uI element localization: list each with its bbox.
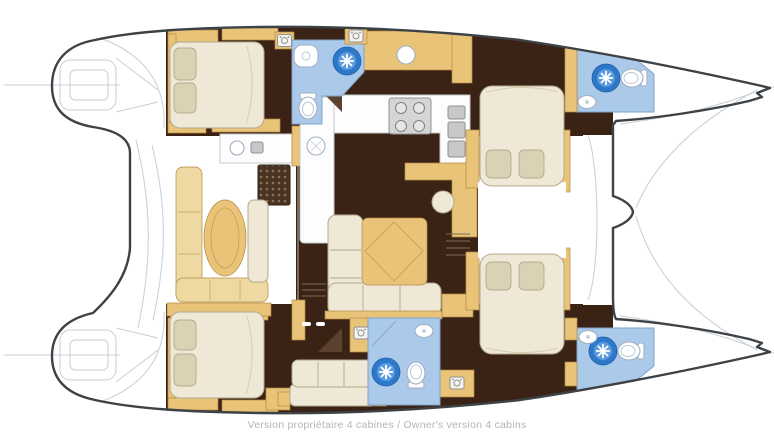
shower-icon	[372, 358, 400, 386]
cockpit-bench	[248, 200, 268, 282]
pillow	[174, 354, 196, 386]
sink-icon	[294, 45, 318, 67]
oven-icon	[448, 122, 465, 138]
sink-icon	[579, 331, 597, 344]
forward-cabin-port	[466, 86, 570, 222]
pillow	[174, 48, 196, 80]
floor-hatch-grid	[258, 165, 290, 205]
shower-icon	[333, 47, 361, 75]
sink-icon	[578, 96, 596, 109]
forward-cabin-starboard	[466, 218, 570, 354]
toilet-icon	[299, 93, 317, 119]
oven-icon	[448, 106, 465, 119]
forward-bathroom-starboard	[565, 318, 657, 407]
faucet-icon	[251, 142, 263, 153]
washer-icon	[349, 30, 363, 42]
shower-icon	[592, 64, 620, 92]
saloon-table	[362, 218, 427, 285]
floor-plan-page: Version propriétaire 4 cabines / Owner's…	[0, 0, 774, 440]
plan-caption: Version propriétaire 4 cabines / Owner's…	[0, 419, 774, 431]
aft-bathroom-starboard	[368, 318, 440, 405]
pillow	[519, 262, 544, 290]
catamaran-floor-plan	[0, 0, 774, 440]
sink-icon	[230, 141, 244, 155]
forward-bathroom-port	[565, 33, 657, 112]
washer-icon	[278, 35, 292, 47]
sink-icon	[397, 46, 415, 64]
stove-icon	[389, 98, 431, 134]
door-jamb	[292, 300, 305, 340]
sink-icon	[415, 325, 433, 338]
fridge-icon	[448, 141, 465, 157]
washer-icon	[354, 327, 368, 339]
toilet-icon	[407, 362, 425, 388]
cockpit-table	[204, 200, 246, 276]
saloon-sofa	[328, 283, 441, 315]
wardrobe	[452, 33, 472, 83]
pillow	[174, 320, 196, 350]
toilet-icon	[621, 69, 647, 87]
washer-icon	[450, 377, 464, 389]
pillow	[486, 262, 511, 290]
toilet-icon	[618, 342, 644, 360]
nav-stool	[432, 191, 454, 213]
pillow	[486, 150, 511, 178]
settee	[292, 360, 374, 387]
pillow	[174, 83, 196, 113]
pillow	[519, 150, 544, 178]
